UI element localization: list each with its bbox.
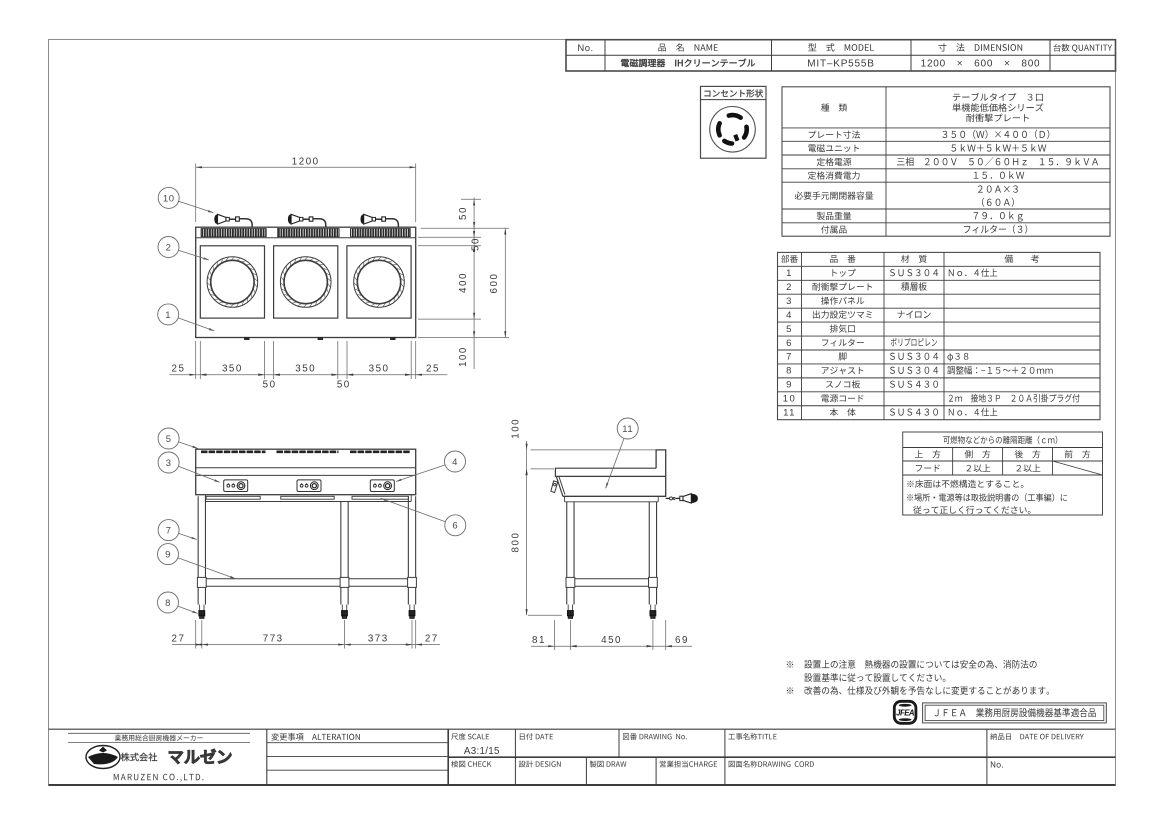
svg-text:25: 25: [426, 363, 440, 374]
svg-text:No.: No.: [577, 43, 593, 54]
svg-text:350: 350: [295, 363, 316, 374]
svg-text:11: 11: [622, 424, 633, 435]
svg-text:50: 50: [471, 237, 482, 251]
svg-text:6: 6: [452, 521, 458, 532]
svg-text:1200 × 600 × 800: 1200 × 600 × 800: [921, 59, 1041, 70]
svg-text:69: 69: [675, 635, 689, 646]
svg-text:1: 1: [165, 310, 171, 321]
svg-text:JFEA: JFEA: [896, 708, 915, 717]
svg-text:A3:1/15: A3:1/15: [464, 746, 500, 757]
svg-text:50: 50: [458, 206, 469, 220]
svg-text:3: 3: [166, 458, 172, 469]
svg-text:600: 600: [489, 273, 500, 294]
svg-text:27: 27: [172, 633, 186, 644]
svg-text:11: 11: [783, 408, 796, 419]
svg-text:27: 27: [425, 633, 439, 644]
svg-text:3: 3: [786, 296, 793, 307]
svg-text:10: 10: [163, 193, 175, 204]
svg-text:9: 9: [786, 380, 793, 391]
svg-text:MIT–KP555B: MIT–KP555B: [807, 59, 874, 70]
svg-text:81: 81: [532, 635, 546, 646]
svg-text:773: 773: [263, 633, 284, 644]
svg-text:450: 450: [601, 635, 622, 646]
svg-text:350: 350: [222, 363, 243, 374]
svg-text:50: 50: [263, 379, 277, 390]
svg-text:800: 800: [511, 532, 522, 553]
svg-text:100: 100: [458, 346, 469, 367]
svg-text:25: 25: [172, 363, 186, 374]
svg-text:373: 373: [368, 633, 389, 644]
svg-text:2: 2: [786, 282, 793, 293]
svg-text:4: 4: [786, 310, 793, 321]
svg-text:1200: 1200: [292, 156, 320, 167]
svg-text:400: 400: [458, 272, 469, 293]
svg-text:2: 2: [166, 242, 172, 253]
svg-text:8: 8: [165, 598, 171, 609]
svg-text:1: 1: [786, 268, 793, 279]
svg-text:5: 5: [166, 434, 172, 445]
svg-text:5: 5: [786, 324, 793, 335]
svg-text:4: 4: [452, 457, 458, 468]
svg-text:9: 9: [165, 550, 171, 561]
svg-text:10: 10: [783, 394, 797, 405]
svg-text:8: 8: [786, 366, 793, 377]
svg-text:100: 100: [511, 418, 522, 439]
svg-text:350: 350: [369, 363, 390, 374]
svg-text:7: 7: [786, 352, 793, 363]
svg-text:7: 7: [166, 526, 172, 537]
svg-text:50: 50: [337, 379, 351, 390]
svg-text:6: 6: [786, 338, 793, 349]
